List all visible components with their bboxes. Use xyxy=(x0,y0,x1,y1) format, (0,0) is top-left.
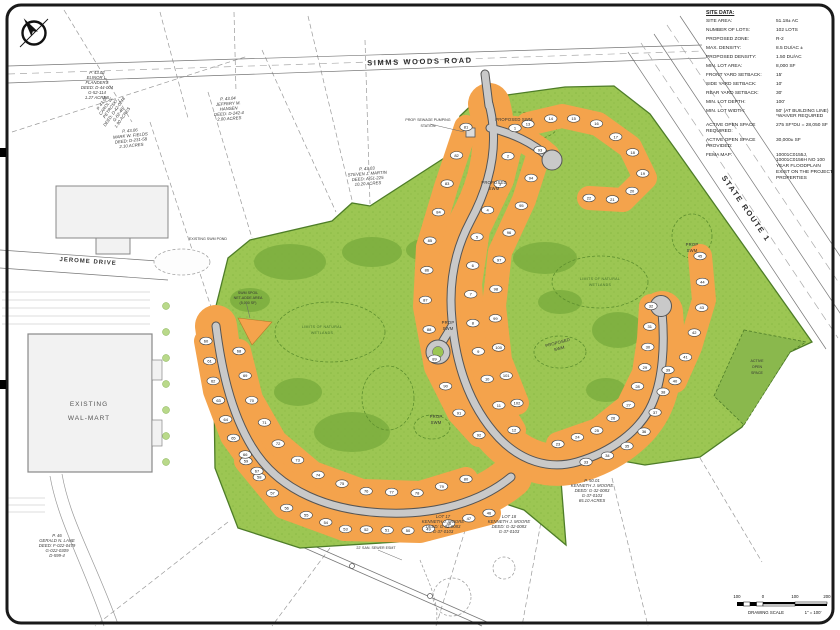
lot-marker: 11 xyxy=(493,401,505,409)
svg-text:65: 65 xyxy=(231,436,236,441)
svg-text:37: 37 xyxy=(653,410,658,415)
svg-text:74: 74 xyxy=(316,472,321,477)
svg-text:62: 62 xyxy=(211,378,216,383)
site-data-row: MIN. LOT WIDTH:50' (AT BUILDING LINE) *W… xyxy=(706,109,833,121)
proposed-swm-mid-label: PROPOSED xyxy=(481,180,506,185)
lot-marker: 16 xyxy=(590,120,602,128)
svg-text:31: 31 xyxy=(648,324,653,329)
lot-marker: 99 xyxy=(489,314,501,322)
lot-marker: 63 xyxy=(212,397,224,405)
lot-marker: 64 xyxy=(220,416,232,424)
svg-text:27: 27 xyxy=(626,402,631,407)
svg-text:SWM: SWM xyxy=(443,326,454,331)
svg-text:51: 51 xyxy=(385,528,390,533)
lot-marker: 44 xyxy=(696,278,708,286)
svg-text:20: 20 xyxy=(630,188,635,193)
svg-text:57: 57 xyxy=(270,491,275,496)
svg-text:200: 200 xyxy=(823,594,831,599)
lot-marker: 29 xyxy=(639,363,651,371)
svg-text:88: 88 xyxy=(427,327,432,332)
lot-marker: 45 xyxy=(694,252,706,260)
svg-text:59: 59 xyxy=(244,459,249,464)
svg-text:100: 100 xyxy=(495,345,502,350)
site-data-row: MAX. DENSITY:8.5 DU/AC ± xyxy=(706,46,833,52)
svg-text:P. 43.04JEFFERY M.HANSENDEED:: P. 43.04JEFFERY M.HANSENDEED: D-242-42.0… xyxy=(213,95,245,122)
jerome-drive-label: JEROME DRIVE xyxy=(59,257,117,267)
lot-marker: 6 xyxy=(467,262,479,270)
lot-marker: 85 xyxy=(424,237,436,245)
lot-marker: 21 xyxy=(606,196,618,204)
scale-bar: 100 0 100 200 DRAWING SCALE 1" = 100' xyxy=(733,594,831,615)
lot-marker: 4 xyxy=(481,206,493,214)
svg-text:29: 29 xyxy=(643,365,648,370)
svg-text:63: 63 xyxy=(216,398,221,403)
svg-text:75: 75 xyxy=(340,481,345,486)
lot-marker: 41 xyxy=(679,353,691,361)
lot-marker: 33 xyxy=(580,458,592,466)
simms-woods-road-lines xyxy=(8,45,706,83)
svg-text:98: 98 xyxy=(494,287,499,292)
svg-text:25: 25 xyxy=(595,428,600,433)
wetlands-label-west: LIMITS OF NATURAL xyxy=(302,325,342,329)
lot-marker: 61 xyxy=(203,357,215,365)
lot-marker: 81 xyxy=(460,123,472,131)
lot-marker: 28 xyxy=(631,382,643,390)
svg-text:67: 67 xyxy=(255,469,260,474)
svg-text:41: 41 xyxy=(683,355,688,360)
site-data-row: NUMBER OF LOTS:102 LOTS xyxy=(706,28,833,34)
lot-marker: 18 xyxy=(626,149,638,157)
lot-marker: 5 xyxy=(471,233,483,241)
svg-text:79: 79 xyxy=(439,484,444,489)
site-data-row: SIDE YARD SETBACK:10' xyxy=(706,82,833,88)
lot-marker: 23 xyxy=(552,440,564,448)
svg-text:10: 10 xyxy=(485,376,490,381)
lot-marker: 65 xyxy=(227,434,239,442)
lot-marker: 92 xyxy=(473,431,485,439)
site-data-title: SITE DATA: xyxy=(706,10,833,16)
lot-marker: 54 xyxy=(320,519,332,527)
lot-marker: 93 xyxy=(534,146,546,154)
svg-text:40: 40 xyxy=(673,379,678,384)
lot-marker: 15 xyxy=(567,115,579,123)
site-data-row: REAR YARD SETBACK:30' xyxy=(706,91,833,97)
svg-text:70: 70 xyxy=(250,398,255,403)
svg-text:91: 91 xyxy=(457,410,462,415)
lot-marker: 83 xyxy=(441,180,453,188)
svg-text:71: 71 xyxy=(262,420,267,425)
svg-text:102: 102 xyxy=(514,401,521,406)
svg-text:39: 39 xyxy=(666,368,671,373)
svg-text:23: 23 xyxy=(556,442,561,447)
north-arrow-icon xyxy=(20,16,48,47)
parcel-label-fields: P. 43.06MARK W. FIELDSDEED: D-231-582.10… xyxy=(112,126,149,150)
svg-text:SWM: SWM xyxy=(687,248,698,253)
proposed-swm-top-label: PROPOSED SWM xyxy=(495,117,533,122)
svg-text:P. 43.06MARK W. FIELDSDEED: D-: P. 43.06MARK W. FIELDSDEED: D-231-582.10… xyxy=(112,126,149,150)
svg-text:78: 78 xyxy=(415,490,420,495)
site-data-row: MIN. LOT AREA:8,000 SF xyxy=(706,64,833,70)
svg-text:SWM: SWM xyxy=(489,186,500,191)
svg-text:56: 56 xyxy=(284,505,289,510)
site-data-row: ACTIVE OPEN SPACE PROVIDED:30,000± SF xyxy=(706,138,833,150)
lot-marker: 50 xyxy=(402,527,414,535)
simms-woods-road-label: SIMMS WOODS ROAD xyxy=(367,56,473,68)
landscape-trees xyxy=(163,303,170,466)
lot-marker: 56 xyxy=(280,504,292,512)
lot-marker: 68 xyxy=(233,347,245,355)
parcel-label-martin: P. 43.03STEVEN J. MARTINDEED: A-51-22510… xyxy=(347,165,389,188)
prop-swm-bottom-label: PROP xyxy=(430,414,443,419)
svg-text:35: 35 xyxy=(625,444,630,449)
lot-marker: 84 xyxy=(432,208,444,216)
svg-text:32: 32 xyxy=(649,304,654,309)
svg-text:76: 76 xyxy=(364,489,369,494)
lot-marker: 39 xyxy=(662,366,674,374)
parcel-label-lane: P. 46GERALD N. LANEDEED: F-022-0479G-022… xyxy=(39,533,76,558)
svg-text:42: 42 xyxy=(692,330,697,335)
site-data-row: FRONT YARD SETBACK:15' xyxy=(706,73,833,79)
svg-text:97: 97 xyxy=(497,257,502,262)
svg-text:93: 93 xyxy=(538,148,543,153)
lot-marker: 26 xyxy=(607,414,619,422)
svg-text:16: 16 xyxy=(594,121,599,126)
edge-mark xyxy=(0,380,6,389)
lot-marker: 24 xyxy=(571,433,583,441)
drawing-scale-caption: DRAWING SCALE xyxy=(748,610,784,615)
site-data-row: PROPOSED DENSITY:1.50 DU/AC xyxy=(706,55,833,61)
lot-marker: 25 xyxy=(591,427,603,435)
svg-text:13: 13 xyxy=(526,122,531,127)
site-data-table: SITE DATA: SITE AREA:51.18± AC NUMBER OF… xyxy=(706,10,833,185)
lot-marker: 47 xyxy=(463,514,475,522)
lot-marker: 27 xyxy=(622,401,634,409)
svg-text:90: 90 xyxy=(443,384,448,389)
svg-text:26: 26 xyxy=(611,415,616,420)
svg-text:21: 21 xyxy=(610,197,615,202)
svg-text:72: 72 xyxy=(276,441,281,446)
svg-text:83: 83 xyxy=(445,181,450,186)
existing-swm-pond-label: EXISTING SWM POND xyxy=(189,237,227,241)
lot-marker: 87 xyxy=(419,296,431,304)
svg-text:P. 43.02ELINOR L.FLANDERSDEED:: P. 43.02ELINOR L.FLANDERSDEED: D-44-004G… xyxy=(81,70,114,100)
svg-text:77: 77 xyxy=(389,490,394,495)
lot-marker: 43 xyxy=(696,304,708,312)
svg-text:45: 45 xyxy=(698,254,703,259)
lot-marker: 90 xyxy=(439,382,451,390)
drawing-scale-ratio: 1" = 100' xyxy=(805,610,822,615)
svg-text:24: 24 xyxy=(575,435,580,440)
site-data-row: PROPOSED ZONE:R-2 xyxy=(706,37,833,43)
lot-marker: 35 xyxy=(621,442,633,450)
svg-text:43: 43 xyxy=(699,305,704,310)
lot-marker: 8 xyxy=(467,319,479,327)
svg-text:17: 17 xyxy=(614,134,619,139)
svg-text:80: 80 xyxy=(464,477,469,482)
svg-text:WETLANDS: WETLANDS xyxy=(311,331,334,335)
svg-text:30: 30 xyxy=(646,344,651,349)
lot-marker: 72 xyxy=(272,440,284,448)
svg-text:61: 61 xyxy=(207,358,212,363)
lot-marker: 102 xyxy=(511,399,523,407)
lot-marker: 82 xyxy=(450,151,462,159)
sewer-line xyxy=(300,542,487,626)
lot-marker: 89 xyxy=(428,355,440,363)
lot-marker: 1 xyxy=(509,124,521,132)
lot-marker: 36 xyxy=(638,428,650,436)
svg-text:12: 12 xyxy=(512,428,517,433)
lot-marker: 46 xyxy=(483,509,495,517)
parcel-label-hansen: P. 43.04JEFFERY M.HANSENDEED: D-242-42.0… xyxy=(213,95,245,122)
manhole xyxy=(350,564,355,569)
swm-spoil-label: SWM SPOIL xyxy=(238,291,258,295)
svg-text:WETLANDS: WETLANDS xyxy=(589,283,612,287)
lot-marker: 94 xyxy=(525,174,537,182)
svg-text:85: 85 xyxy=(428,238,433,243)
svg-text:46: 46 xyxy=(487,511,492,516)
lot-marker: 17 xyxy=(610,133,622,141)
site-data-row: SITE AREA:51.18± AC xyxy=(706,19,833,25)
lot-marker: 75 xyxy=(336,480,348,488)
svg-text:WAL-MART: WAL-MART xyxy=(68,415,110,422)
sewer-esmt-label: 22' SAN. SEWER ESMT xyxy=(356,546,396,550)
svg-text:0: 0 xyxy=(762,594,765,599)
lot-marker: 62 xyxy=(207,377,219,385)
svg-text:P. 46GERALD N. LANEDEED: F-022: P. 46GERALD N. LANEDEED: F-022-0479G-022… xyxy=(39,533,76,558)
strip-mall-building xyxy=(56,186,168,238)
svg-text:36: 36 xyxy=(642,429,647,434)
lot-marker: 32 xyxy=(645,302,657,310)
svg-text:58: 58 xyxy=(257,475,262,480)
parcel-label-flanders: P. 43.02ELINOR L.FLANDERSDEED: D-44-004G… xyxy=(81,70,114,100)
svg-text:64: 64 xyxy=(223,417,228,422)
lot-marker: 52 xyxy=(360,526,372,534)
svg-text:18: 18 xyxy=(630,150,635,155)
svg-text:73: 73 xyxy=(295,458,300,463)
lot-marker: 31 xyxy=(644,323,656,331)
svg-text:53: 53 xyxy=(343,527,348,532)
svg-text:(5,000 SF): (5,000 SF) xyxy=(240,301,257,305)
svg-text:86: 86 xyxy=(425,268,430,273)
svg-text:47: 47 xyxy=(467,516,472,521)
plan-sheet: 1234567891011121314151617181920212223242… xyxy=(0,0,840,630)
svg-text:68: 68 xyxy=(237,349,242,354)
svg-text:66: 66 xyxy=(243,452,248,457)
svg-text:54: 54 xyxy=(324,520,329,525)
lot-marker: 20 xyxy=(626,187,638,195)
active-open-space-label: ACTIVE xyxy=(751,359,765,363)
svg-text:OPEN: OPEN xyxy=(752,365,763,369)
svg-text:55: 55 xyxy=(304,513,309,518)
lot-marker: 14 xyxy=(545,115,557,123)
lot-marker: 12 xyxy=(508,426,520,434)
svg-text:SWM: SWM xyxy=(431,420,442,425)
svg-text:28: 28 xyxy=(635,384,640,389)
lot-marker: 34 xyxy=(601,452,613,460)
svg-text:14: 14 xyxy=(549,116,554,121)
pump-station-label: PROP. SEWAGE PUMPING xyxy=(405,118,450,122)
lot-marker: 60 xyxy=(200,337,212,345)
svg-text:NET-ADDE AREA: NET-ADDE AREA xyxy=(234,296,263,300)
lot-marker: 40 xyxy=(669,377,681,385)
lot-marker: 78 xyxy=(411,489,423,497)
svg-text:82: 82 xyxy=(454,153,459,158)
lot-marker: 66 xyxy=(239,451,251,459)
svg-text:50: 50 xyxy=(406,528,411,533)
lot-marker: 69 xyxy=(239,372,251,380)
svg-text:69: 69 xyxy=(243,373,248,378)
svg-text:19: 19 xyxy=(641,171,646,176)
jerome-drive-lines xyxy=(0,250,172,280)
lot-marker: 80 xyxy=(460,475,472,483)
lot-marker: 51 xyxy=(381,526,393,534)
svg-text:87: 87 xyxy=(423,298,428,303)
lot-marker: 71 xyxy=(258,419,270,427)
svg-text:100: 100 xyxy=(733,594,741,599)
svg-text:15: 15 xyxy=(571,116,576,121)
lot-marker: 73 xyxy=(291,456,303,464)
lot-marker: 70 xyxy=(246,397,258,405)
svg-text:100: 100 xyxy=(791,594,799,599)
prop-swm-pond-label: PROP xyxy=(442,320,455,325)
lot-marker: 77 xyxy=(385,488,397,496)
lot-marker: 37 xyxy=(649,409,661,417)
svg-text:52: 52 xyxy=(364,527,369,532)
lot-marker: 98 xyxy=(490,285,502,293)
lot-marker: 30 xyxy=(642,343,654,351)
svg-text:94: 94 xyxy=(529,176,534,181)
svg-text:60: 60 xyxy=(204,339,209,344)
svg-text:95: 95 xyxy=(519,203,524,208)
lot-marker: 86 xyxy=(421,266,433,274)
lot-marker: 2 xyxy=(502,152,514,160)
svg-text:81: 81 xyxy=(464,125,469,130)
wetlands-label-east: LIMITS OF NATURAL xyxy=(580,277,620,281)
existing-pond-outline xyxy=(154,249,210,275)
site-data-row: FEMA MAP:10001C0155J, 10001C0156H NO 100… xyxy=(706,153,833,182)
lot-marker: 7 xyxy=(465,290,477,298)
edge-mark xyxy=(0,148,6,157)
svg-text:96: 96 xyxy=(507,230,512,235)
svg-text:89: 89 xyxy=(432,356,437,361)
lot-marker: 97 xyxy=(493,256,505,264)
svg-text:34: 34 xyxy=(605,453,610,458)
svg-text:101: 101 xyxy=(503,373,510,378)
lot-marker: 88 xyxy=(423,326,435,334)
cul-de-sac-north xyxy=(542,150,562,170)
lot-marker: 101 xyxy=(500,372,512,380)
lot-marker: 57 xyxy=(266,489,278,497)
site-data-row: ACTIVE OPEN SPACE REQUIRED:275 SF*DU = 2… xyxy=(706,123,833,135)
lot-marker: 79 xyxy=(435,483,447,491)
lot-marker: 53 xyxy=(339,525,351,533)
svg-text:44: 44 xyxy=(700,279,705,284)
lot-marker: 55 xyxy=(300,511,312,519)
svg-text:84: 84 xyxy=(436,210,441,215)
svg-text:38: 38 xyxy=(661,389,666,394)
svg-text:P. 43.03STEVEN J. MARTINDEED:: P. 43.03STEVEN J. MARTINDEED: A-51-22510… xyxy=(347,165,389,188)
lot-marker: 19 xyxy=(637,170,649,178)
existing-walmart-label: EXISTING xyxy=(70,401,108,408)
svg-text:SPACE: SPACE xyxy=(751,371,764,375)
lot-marker: 67 xyxy=(251,467,263,475)
lot-marker: 74 xyxy=(312,471,324,479)
manhole xyxy=(428,594,433,599)
svg-text:92: 92 xyxy=(477,433,482,438)
svg-text:99: 99 xyxy=(493,316,498,321)
lot-marker: 91 xyxy=(453,409,465,417)
lot-marker: 100 xyxy=(492,344,504,352)
svg-text:22: 22 xyxy=(587,196,592,201)
lot-marker: 96 xyxy=(503,229,515,237)
site-data-row: MIN. LOT DEPTH:100' xyxy=(706,100,833,106)
lot-marker: 9 xyxy=(472,348,484,356)
lot-marker: 95 xyxy=(515,202,527,210)
lot-marker: 10 xyxy=(481,375,493,383)
lot-marker: 76 xyxy=(360,487,372,495)
lot-marker: 42 xyxy=(688,329,700,337)
lot-marker: 38 xyxy=(657,388,669,396)
lot-marker: 22 xyxy=(583,194,595,202)
svg-text:33: 33 xyxy=(584,460,589,465)
prop-swm-east-label: PROP xyxy=(686,242,699,247)
